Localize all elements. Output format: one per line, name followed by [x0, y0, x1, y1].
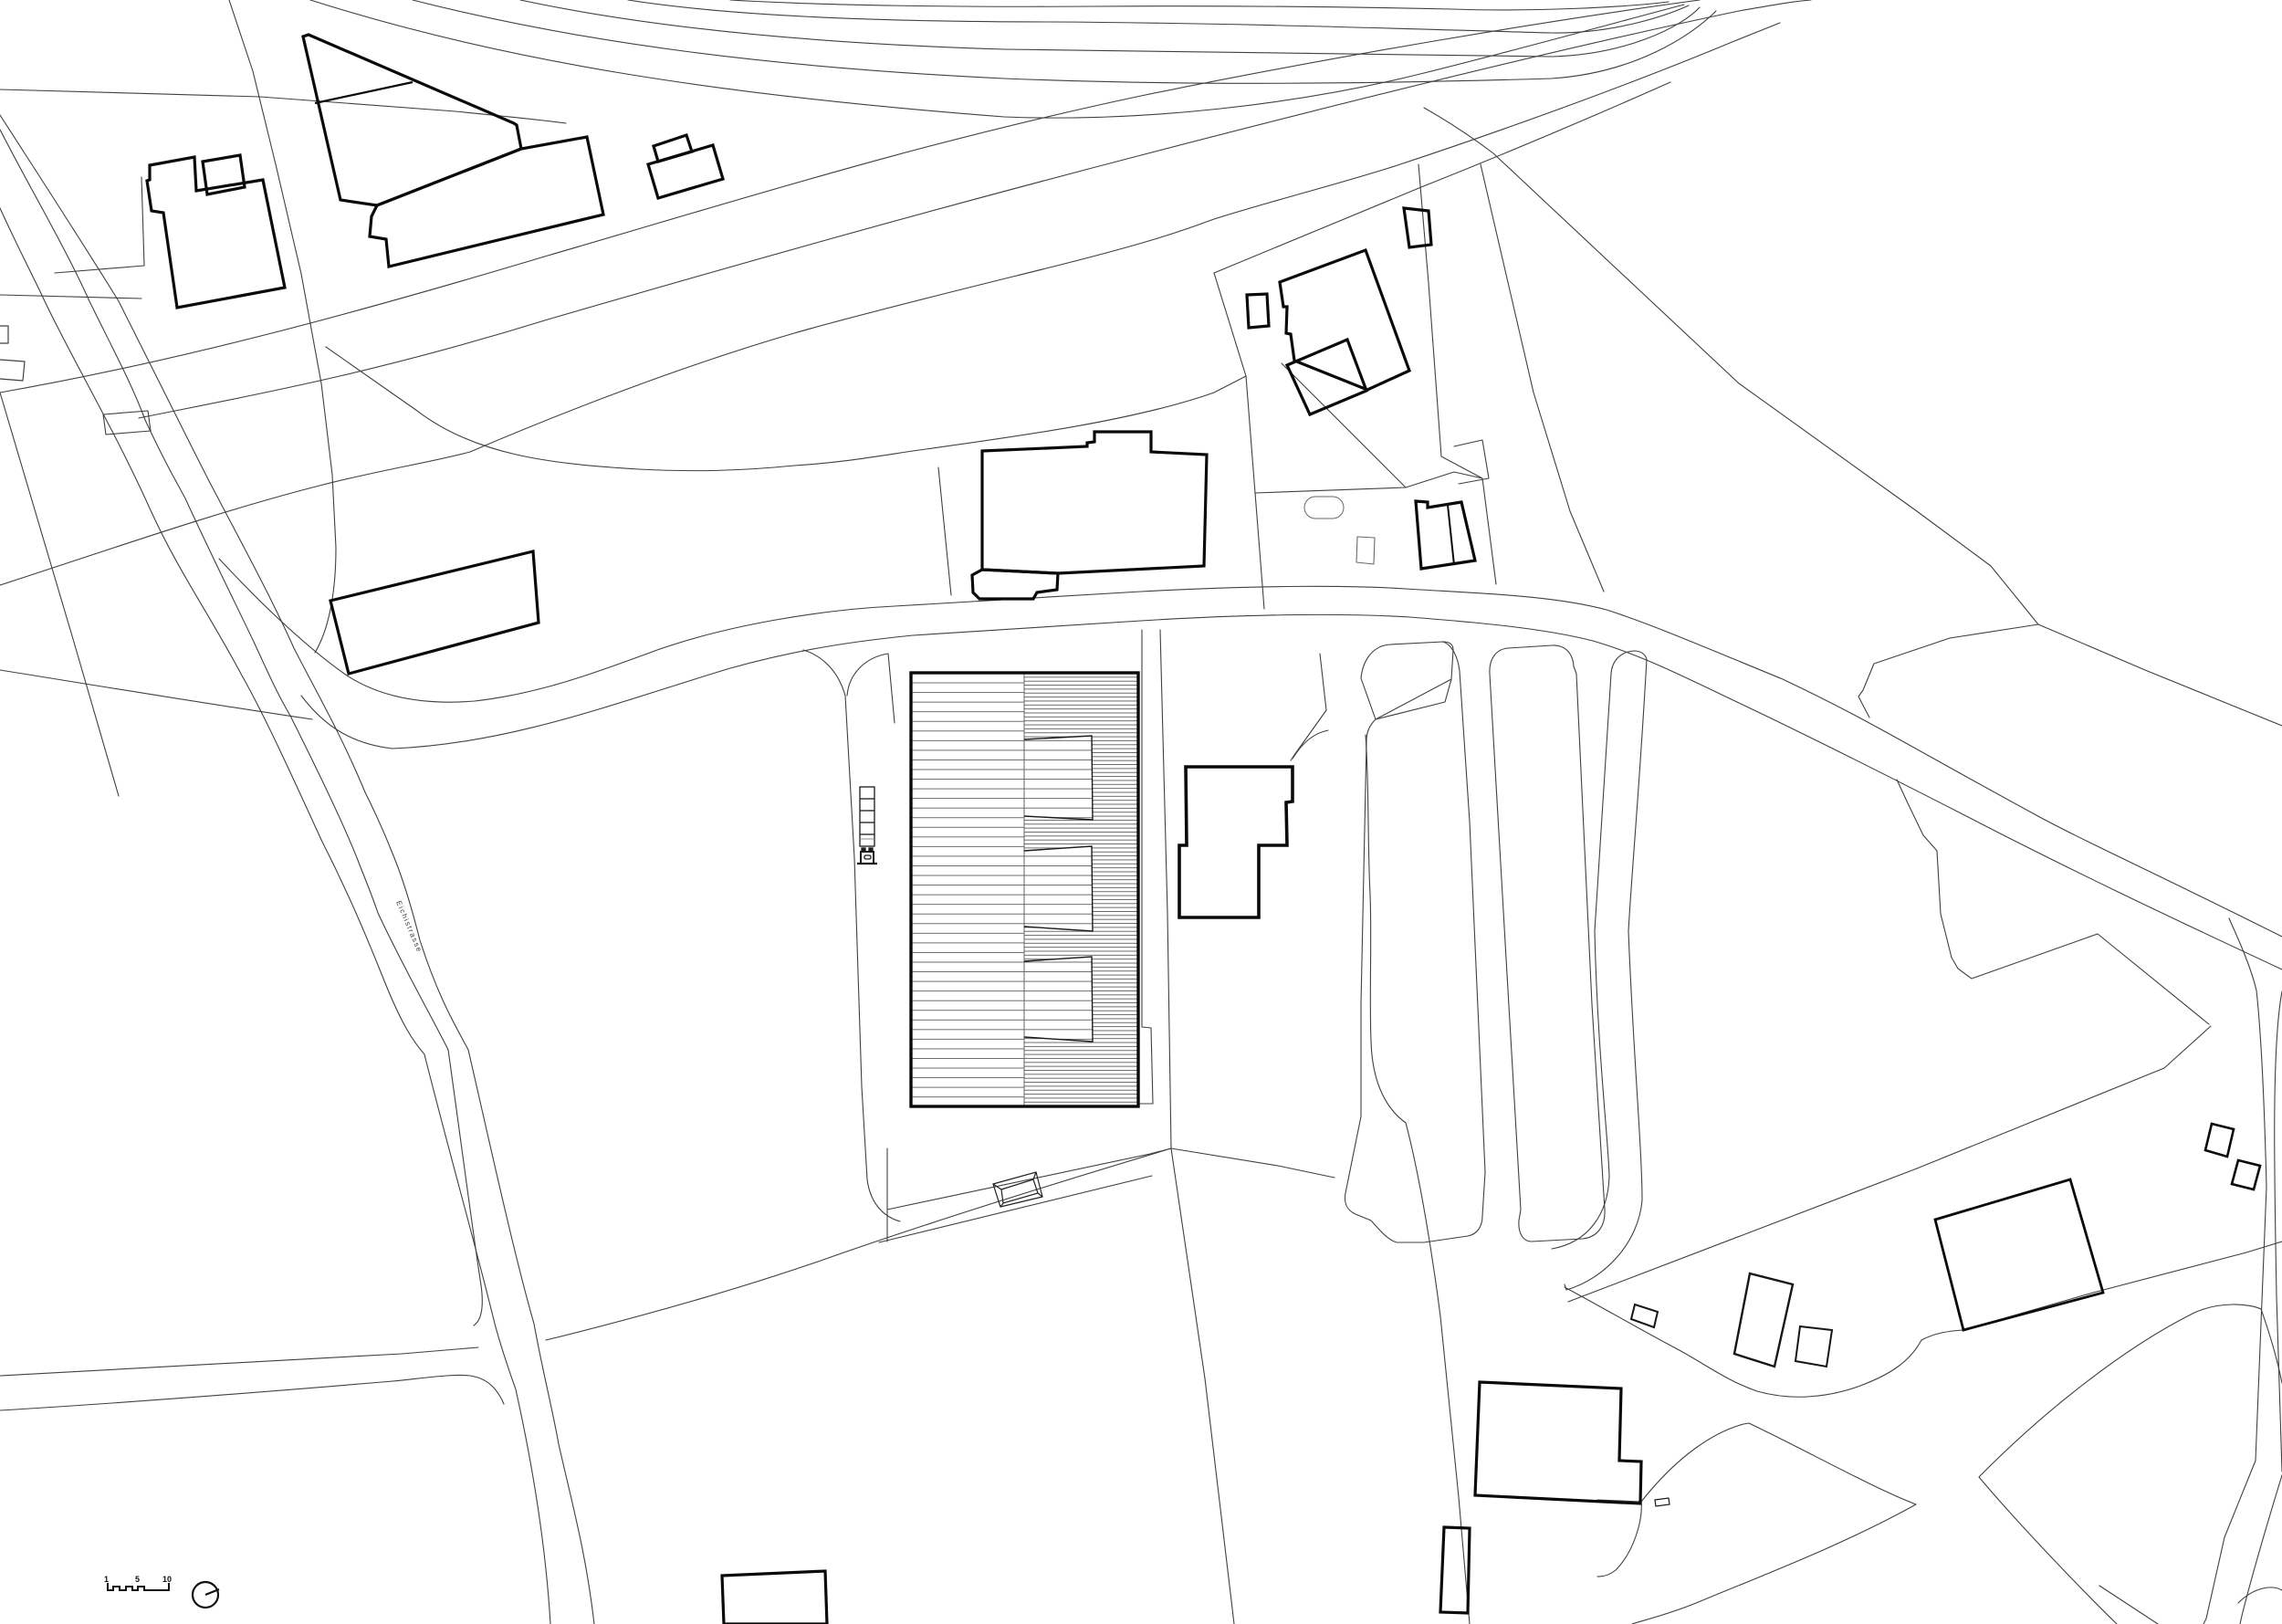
svg-text:10: 10	[162, 1575, 172, 1584]
svg-text:5: 5	[135, 1575, 140, 1584]
svg-text:1: 1	[104, 1575, 109, 1584]
